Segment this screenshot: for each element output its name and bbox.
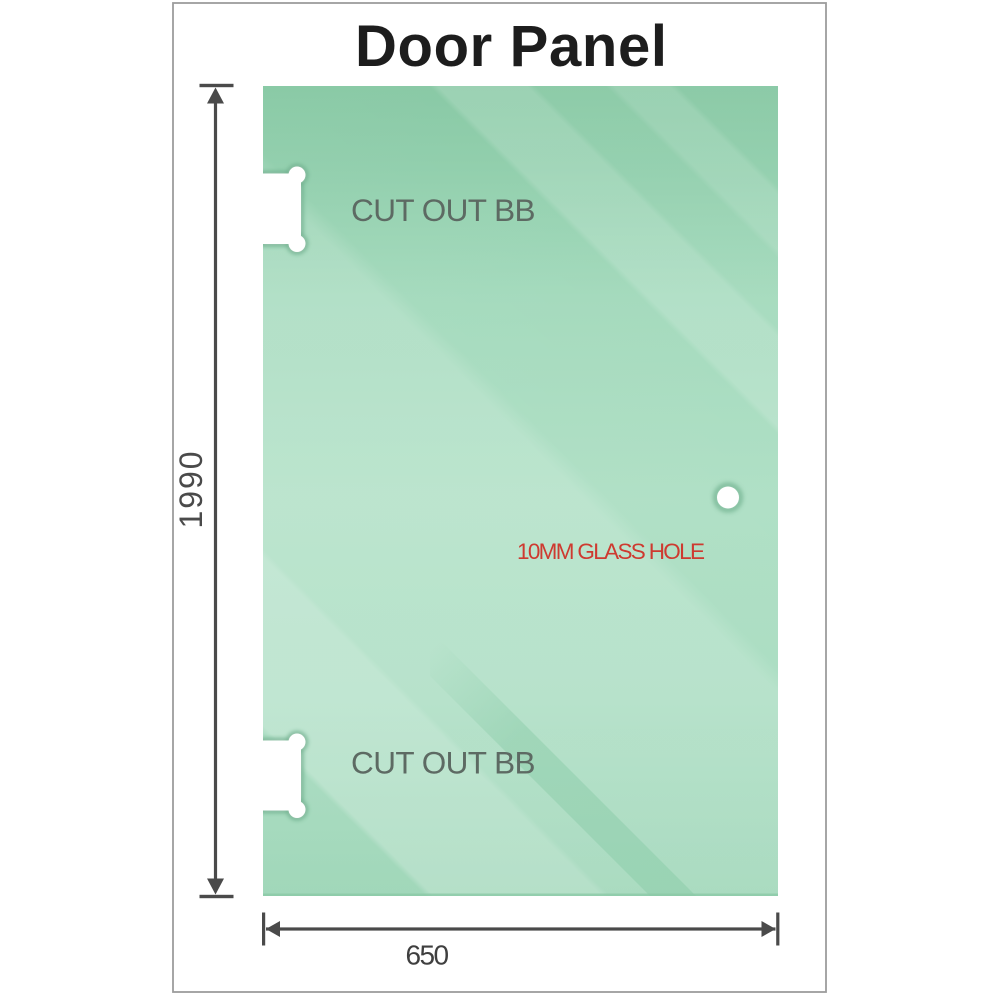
svg-text:CUT OUT BB: CUT OUT BB	[351, 745, 536, 781]
svg-text:1990: 1990	[173, 452, 209, 529]
svg-text:650: 650	[406, 940, 450, 971]
svg-text:Door Panel: Door Panel	[355, 14, 667, 79]
svg-text:10MM GLASS HOLE: 10MM GLASS HOLE	[517, 539, 705, 564]
svg-text:CUT OUT BB: CUT OUT BB	[351, 192, 536, 228]
